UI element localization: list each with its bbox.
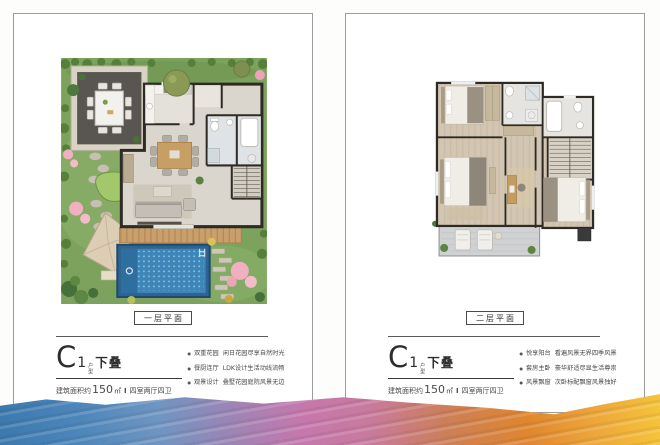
- feature-tag: 观景设计: [194, 376, 219, 391]
- area-separator: Ⅰ: [456, 387, 459, 395]
- feature-list: 双重花园 闲日花园尽享自然时光 餐厨连厅 LDK设计生活动线流畅 观景设计 叠墅…: [187, 347, 302, 391]
- study-nook: [507, 167, 533, 207]
- marketing-poster: { "colors": { "card_border": "#9c9c9c", …: [0, 0, 660, 445]
- first-floor-plan-svg: [61, 58, 267, 304]
- info-section: C 1 户 型 下叠 建筑面积约 150 ㎡ Ⅰ 四室两厅四卫 悦享阳台 看遍风…: [388, 344, 634, 396]
- unit-letter: C: [56, 344, 76, 370]
- feature-tag: 双重花园: [194, 347, 219, 362]
- unit-type-small: 户 型: [420, 364, 425, 375]
- indoor-plant: [196, 176, 204, 184]
- feature-tag: 风景飘窗: [526, 376, 551, 391]
- window: [592, 186, 595, 210]
- feature-tag: 悦享阳台: [526, 347, 551, 362]
- bedroom-top-left: [441, 86, 499, 124]
- area-value: 150: [424, 383, 445, 396]
- house-second-floor: [436, 82, 594, 241]
- window: [436, 172, 439, 196]
- area-prefix: 建筑面积约: [56, 386, 91, 396]
- feature-bullet: 观景设计 叠墅花园庭院风景无边: [187, 376, 302, 391]
- window: [451, 82, 475, 85]
- first-floor-plan-image: [61, 58, 267, 304]
- feature-bullet: 风景飘窗 次卧标配飘窗风景独好: [519, 376, 634, 391]
- wood-deck: [119, 228, 241, 243]
- ac-unit: [578, 228, 591, 241]
- feature-bullet: 悦享阳台 看遍风景无界四季风景: [519, 347, 634, 362]
- second-floor-plan-svg: [427, 75, 603, 261]
- feature-tag: 餐厨连厅: [194, 362, 219, 377]
- pergola-patio: [71, 66, 147, 150]
- floor-label: 一层平面: [134, 311, 192, 325]
- unit-title-block: C 1 户 型 下叠 建筑面积约 150 ㎡ Ⅰ 四室两厅四卫: [388, 344, 519, 396]
- feature-tag: 套房主卧: [526, 362, 551, 377]
- first-floor-card: 一层平面 C 1 户 型 下叠 建筑面积约 150 ㎡ Ⅰ 四室两厅四卫: [13, 13, 313, 413]
- feature-desc: LDK设计生活动线流畅: [223, 362, 285, 377]
- room-count: 四室两厅四卫: [130, 386, 172, 396]
- unit-type-char-bottom: 型: [420, 370, 425, 376]
- second-floor-card: 二层平面 C 1 户 型 下叠 建筑面积约 150 ㎡ Ⅰ 四室两厅四卫: [345, 13, 645, 413]
- area-value: 150: [92, 383, 113, 396]
- feature-list: 悦享阳台 看遍风景无界四季风景 套房主卧 豪华舒适尽显生活尊崇 风景飘窗 次卧标…: [519, 347, 634, 391]
- sideboard: [123, 154, 133, 182]
- divider-line: [56, 336, 268, 337]
- area-separator: Ⅰ: [124, 387, 127, 395]
- swimming-pool: [117, 245, 209, 297]
- area-line: 建筑面积约 150 ㎡ Ⅰ 四室两厅四卫: [56, 383, 187, 396]
- feature-desc: 次卧标配飘窗风景独好: [555, 376, 617, 391]
- sliding-door: [153, 225, 193, 229]
- feature-desc: 豪华舒适尽显生活尊崇: [555, 362, 617, 377]
- unit-number: 1: [409, 355, 418, 371]
- living-room: [133, 185, 195, 225]
- unit-title-block: C 1 户 型 下叠 建筑面积约 150 ㎡ Ⅰ 四室两厅四卫: [56, 344, 187, 396]
- unit-letter: C: [388, 344, 408, 370]
- unit-suffix: 下叠: [95, 352, 122, 371]
- info-section: C 1 户 型 下叠 建筑面积约 150 ㎡ Ⅰ 四室两厅四卫 双重花园 闲日花…: [56, 344, 302, 396]
- area-prefix: 建筑面积约: [388, 386, 423, 396]
- feature-bullet: 餐厨连厅 LDK设计生活动线流畅: [187, 362, 302, 377]
- area-unit: ㎡: [114, 386, 121, 396]
- feature-desc: 看遍风景无界四季风景: [555, 347, 617, 362]
- feature-desc: 叠墅花园庭院风景无边: [223, 376, 285, 391]
- unit-title: C 1 户 型 下叠: [388, 344, 519, 375]
- bedroom-bottom-right: [544, 178, 590, 222]
- title-underline: [56, 378, 182, 379]
- title-underline: [388, 378, 514, 379]
- feature-desc: 闲日花园尽享自然时光: [223, 347, 285, 362]
- unit-type-small: 户 型: [88, 364, 93, 375]
- area-unit: ㎡: [446, 386, 453, 396]
- unit-suffix: 下叠: [427, 352, 454, 371]
- hall-closet: [503, 126, 533, 135]
- second-floor-plan-image: [427, 75, 603, 261]
- unit-title: C 1 户 型 下叠: [56, 344, 187, 375]
- floor-label: 二层平面: [466, 311, 524, 325]
- room-count: 四室两厅四卫: [462, 386, 504, 396]
- unit-type-char-bottom: 型: [88, 370, 93, 376]
- feature-bullet: 双重花园 闲日花园尽享自然时光: [187, 347, 302, 362]
- area-line: 建筑面积约 150 ㎡ Ⅰ 四室两厅四卫: [388, 383, 519, 396]
- feature-bullet: 套房主卧 豪华舒适尽显生活尊崇: [519, 362, 634, 377]
- divider-line: [388, 336, 600, 337]
- unit-number: 1: [77, 355, 86, 371]
